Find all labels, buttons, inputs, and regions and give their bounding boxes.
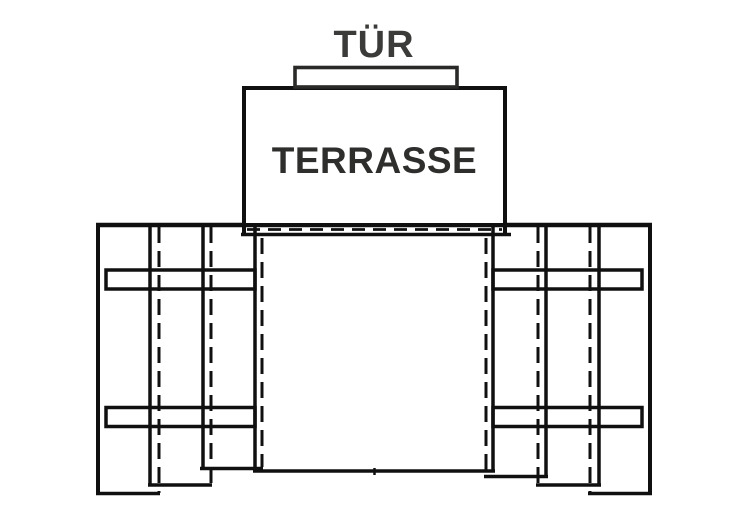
rail-left-bottom: [106, 408, 255, 427]
door-label: TÜR: [333, 23, 414, 66]
rail-right-bottom: [493, 408, 642, 427]
deck-boards: [96, 223, 652, 495]
rail-right-top: [493, 270, 642, 289]
hidden-board-edges: [159, 227, 590, 493]
door-outline: [295, 68, 457, 88]
support-rails: [106, 270, 642, 427]
terrace-label: TERRASSE: [272, 140, 477, 181]
plan-diagram: TÜR TERRASSE: [0, 0, 750, 528]
plan-drawing: TÜR TERRASSE: [0, 0, 750, 528]
rail-left-top: [106, 270, 255, 289]
